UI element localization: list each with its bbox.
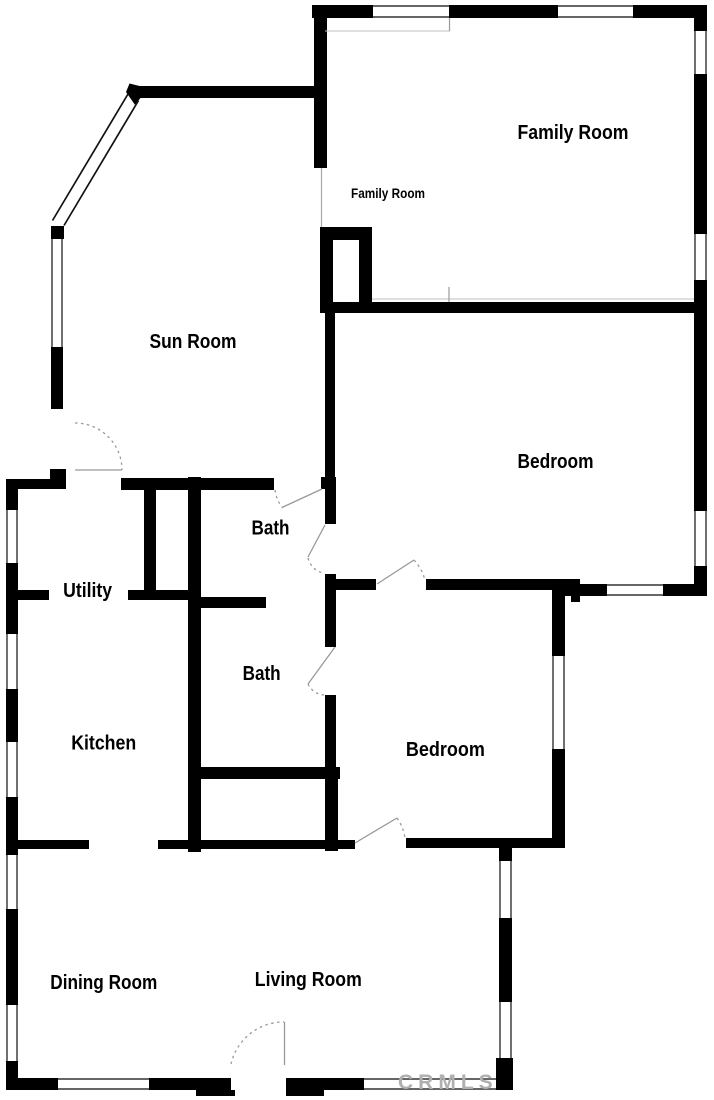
svg-text:Bath: Bath: [243, 663, 281, 685]
svg-text:Living Room: Living Room: [255, 969, 362, 991]
svg-text:Sun Room: Sun Room: [150, 331, 237, 353]
svg-text:Family Room: Family Room: [351, 186, 425, 201]
svg-text:Family Room: Family Room: [518, 122, 629, 144]
svg-text:Bedroom: Bedroom: [406, 739, 485, 761]
svg-text:Dining Room: Dining Room: [50, 972, 157, 994]
svg-text:CRMLS: CRMLS: [398, 1071, 498, 1094]
svg-text:Utility: Utility: [63, 580, 113, 602]
svg-text:Bedroom: Bedroom: [518, 451, 594, 473]
svg-text:Kitchen: Kitchen: [71, 733, 136, 755]
svg-text:Bath: Bath: [252, 518, 290, 540]
